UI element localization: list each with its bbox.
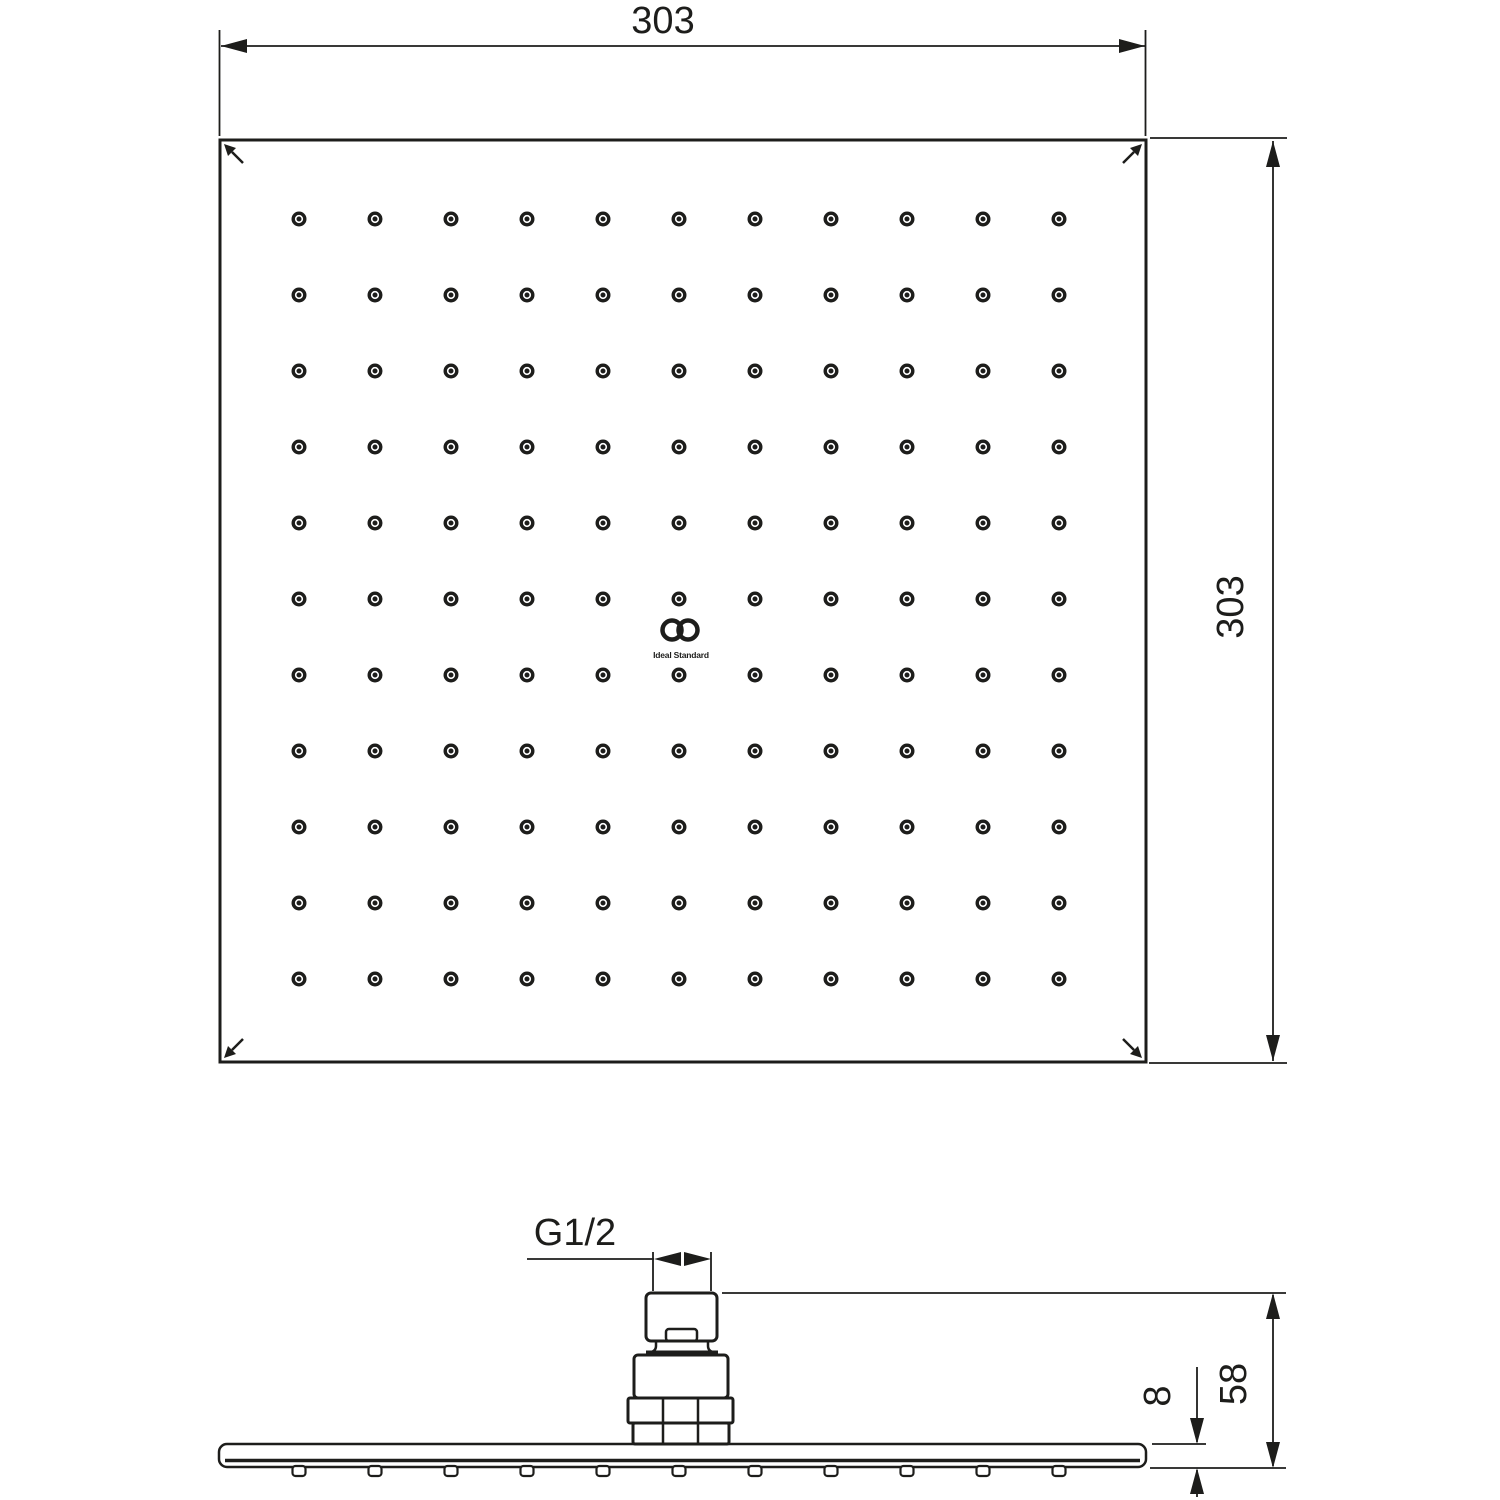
nozzle-dot bbox=[292, 592, 307, 607]
nozzle-dot bbox=[292, 744, 307, 759]
nozzle-dot bbox=[900, 288, 915, 303]
nozzle-dot bbox=[748, 364, 763, 379]
nozzle-dot bbox=[596, 212, 611, 227]
nozzle-dot bbox=[444, 288, 459, 303]
dimension-thread: G1/2 bbox=[527, 1212, 711, 1291]
nozzle-dot bbox=[520, 440, 535, 455]
nozzle-dot bbox=[1052, 516, 1067, 531]
arrowhead-down-icon bbox=[1266, 1035, 1280, 1061]
nozzle-dot bbox=[824, 516, 839, 531]
nozzle-dot bbox=[672, 288, 687, 303]
dimension-plate-thickness-label: 8 bbox=[1137, 1385, 1179, 1406]
nozzle-dot bbox=[596, 820, 611, 835]
thread-notch bbox=[666, 1329, 697, 1341]
arrowhead-down-icon bbox=[1266, 1442, 1280, 1468]
nozzle-dot bbox=[596, 440, 611, 455]
dimension-width: 303 bbox=[220, 0, 1146, 136]
corner-mark-line bbox=[1123, 152, 1134, 163]
nozzle-dot bbox=[976, 592, 991, 607]
nozzle-dot bbox=[748, 516, 763, 531]
nozzle-dot bbox=[976, 820, 991, 835]
nozzle-dot bbox=[976, 668, 991, 683]
arrowhead-up-icon bbox=[1266, 141, 1280, 167]
nozzle-dot bbox=[444, 744, 459, 759]
nozzle-dot bbox=[900, 440, 915, 455]
swivel-block bbox=[634, 1355, 728, 1398]
nozzle-dot bbox=[596, 364, 611, 379]
logo-wordmark: Ideal Standard bbox=[653, 650, 709, 660]
nozzle-dot bbox=[292, 668, 307, 683]
nozzle-dot bbox=[824, 896, 839, 911]
nozzle-dot bbox=[596, 896, 611, 911]
arrowhead-left-icon bbox=[654, 1252, 681, 1266]
nozzle-dot bbox=[368, 592, 383, 607]
nozzle-dot bbox=[444, 364, 459, 379]
nozzle-dot bbox=[596, 668, 611, 683]
nozzle-tick bbox=[673, 1466, 686, 1476]
nozzle-dot bbox=[520, 744, 535, 759]
dimension-width-label: 303 bbox=[631, 0, 694, 42]
nozzle-dot bbox=[596, 288, 611, 303]
nozzle-dot bbox=[1052, 896, 1067, 911]
nozzle-dot bbox=[596, 972, 611, 987]
nozzle-grid bbox=[292, 212, 1067, 987]
corner-mark-line bbox=[232, 1039, 243, 1050]
nozzle-dot bbox=[824, 592, 839, 607]
nozzle-dot bbox=[520, 820, 535, 835]
nozzle-tick bbox=[445, 1466, 458, 1476]
nozzle-dot bbox=[824, 972, 839, 987]
technical-drawing: Ideal Standard 303 303 bbox=[0, 0, 1500, 1500]
nozzle-dot bbox=[900, 972, 915, 987]
nozzle-dot bbox=[672, 516, 687, 531]
nozzle-dot bbox=[748, 972, 763, 987]
corner-mark-line bbox=[1123, 1039, 1134, 1050]
nozzle-dot bbox=[520, 212, 535, 227]
nozzle-dot bbox=[292, 516, 307, 531]
nozzle-dot bbox=[1052, 668, 1067, 683]
nozzle-dot bbox=[292, 440, 307, 455]
nozzle-dot bbox=[520, 592, 535, 607]
dimension-total-height: 58 bbox=[722, 1293, 1286, 1468]
nozzle-dot bbox=[976, 288, 991, 303]
nozzle-dot bbox=[520, 364, 535, 379]
plate-profile bbox=[219, 1444, 1146, 1467]
nozzle-dot bbox=[368, 972, 383, 987]
nut-lower-band bbox=[633, 1423, 729, 1444]
nozzle-dot bbox=[748, 440, 763, 455]
nozzle-dot bbox=[900, 896, 915, 911]
nozzle-dot bbox=[368, 896, 383, 911]
nozzle-dot bbox=[748, 744, 763, 759]
nozzle-dot bbox=[368, 744, 383, 759]
nozzle-dot bbox=[596, 516, 611, 531]
nozzle-dot bbox=[672, 212, 687, 227]
nozzle-dot bbox=[748, 212, 763, 227]
top-view: Ideal Standard bbox=[220, 140, 1146, 1062]
nozzle-dot bbox=[824, 212, 839, 227]
nozzle-dot bbox=[444, 212, 459, 227]
nozzle-dot bbox=[444, 516, 459, 531]
nozzle-tick bbox=[977, 1466, 990, 1476]
nozzle-dot bbox=[900, 592, 915, 607]
nozzle-dot bbox=[672, 972, 687, 987]
nozzle-dot bbox=[292, 972, 307, 987]
nozzle-dot bbox=[520, 668, 535, 683]
nozzle-dot bbox=[748, 820, 763, 835]
nozzle-dot bbox=[596, 744, 611, 759]
thread-block bbox=[646, 1293, 717, 1341]
nozzle-dot bbox=[1052, 820, 1067, 835]
arrowhead-down-icon bbox=[1190, 1418, 1204, 1444]
nozzle-dot bbox=[976, 440, 991, 455]
nut-upper-band bbox=[628, 1398, 733, 1423]
nozzle-dot bbox=[444, 592, 459, 607]
dimension-height-label: 303 bbox=[1210, 575, 1252, 638]
nozzle-dot bbox=[520, 288, 535, 303]
nozzle-dot bbox=[1052, 440, 1067, 455]
nozzle-dot bbox=[596, 592, 611, 607]
nozzle-dot bbox=[520, 516, 535, 531]
nozzle-dot bbox=[444, 972, 459, 987]
side-view bbox=[219, 1293, 1146, 1476]
nozzle-dot bbox=[520, 896, 535, 911]
dimension-height: 303 bbox=[1149, 138, 1287, 1063]
nozzle-dot bbox=[292, 288, 307, 303]
nozzle-dot bbox=[292, 820, 307, 835]
nozzle-dot bbox=[824, 668, 839, 683]
nozzle-dot bbox=[444, 820, 459, 835]
nozzle-dot bbox=[976, 364, 991, 379]
drawing-canvas: Ideal Standard 303 303 bbox=[0, 0, 1500, 1500]
nozzle-dot bbox=[824, 744, 839, 759]
nozzle-dot bbox=[900, 516, 915, 531]
nozzle-dot bbox=[1052, 744, 1067, 759]
nozzle-dot bbox=[368, 440, 383, 455]
corner-mark-bottom-right bbox=[1123, 1039, 1142, 1058]
nozzle-dot bbox=[976, 972, 991, 987]
nozzle-dot bbox=[748, 896, 763, 911]
nozzle-dot bbox=[444, 440, 459, 455]
corner-mark-bottom-left bbox=[224, 1039, 243, 1058]
dimension-total-height-label: 58 bbox=[1213, 1363, 1255, 1405]
nozzle-dot bbox=[824, 288, 839, 303]
nozzle-dot bbox=[1052, 288, 1067, 303]
nozzle-tick bbox=[1053, 1466, 1066, 1476]
nozzle-dot bbox=[976, 212, 991, 227]
nozzle-dot bbox=[444, 896, 459, 911]
nozzle-dot bbox=[444, 668, 459, 683]
nozzle-dot bbox=[1052, 212, 1067, 227]
nozzle-dot bbox=[976, 896, 991, 911]
nozzle-tick bbox=[749, 1466, 762, 1476]
nozzle-dot bbox=[672, 744, 687, 759]
nozzle-dot bbox=[368, 820, 383, 835]
nozzle-dot bbox=[824, 820, 839, 835]
nozzle-tick bbox=[901, 1466, 914, 1476]
nozzle-dot bbox=[672, 820, 687, 835]
nozzle-dot bbox=[976, 744, 991, 759]
nozzle-tick bbox=[597, 1466, 610, 1476]
nozzle-dot bbox=[748, 668, 763, 683]
connector-stack bbox=[628, 1293, 733, 1444]
nozzle-dot bbox=[1052, 592, 1067, 607]
arrowhead-up-icon bbox=[1190, 1468, 1204, 1494]
nozzle-dot bbox=[976, 516, 991, 531]
nozzle-dot bbox=[824, 440, 839, 455]
nozzle-dot bbox=[672, 440, 687, 455]
dimension-plate-thickness: 8 bbox=[1137, 1367, 1206, 1497]
nozzle-tick bbox=[293, 1466, 306, 1476]
corner-mark-line bbox=[232, 152, 243, 163]
nozzle-dot bbox=[368, 516, 383, 531]
nozzle-dot bbox=[520, 972, 535, 987]
nozzle-dot bbox=[900, 668, 915, 683]
nozzle-dot bbox=[292, 212, 307, 227]
nozzle-dot bbox=[900, 364, 915, 379]
nozzle-dot bbox=[368, 288, 383, 303]
nozzle-dot bbox=[900, 744, 915, 759]
nozzle-tick bbox=[521, 1466, 534, 1476]
nozzle-dot bbox=[672, 668, 687, 683]
nozzle-dot bbox=[672, 592, 687, 607]
nozzle-tick bbox=[825, 1466, 838, 1476]
nozzle-tick bbox=[369, 1466, 382, 1476]
nozzle-dot bbox=[900, 212, 915, 227]
arrowhead-right-icon bbox=[1119, 39, 1145, 53]
nozzle-dot bbox=[368, 364, 383, 379]
nozzle-dot bbox=[748, 288, 763, 303]
nozzle-dot bbox=[292, 364, 307, 379]
nozzle-dot bbox=[824, 364, 839, 379]
nozzle-dot bbox=[672, 364, 687, 379]
arrowhead-up-icon bbox=[1266, 1293, 1280, 1319]
nozzle-dot bbox=[1052, 364, 1067, 379]
arrowhead-left-icon bbox=[221, 39, 247, 53]
nozzle-dot bbox=[292, 896, 307, 911]
brand-logo: Ideal Standard bbox=[653, 621, 709, 661]
nozzle-dot bbox=[1052, 972, 1067, 987]
nozzle-dot bbox=[672, 896, 687, 911]
nozzle-dot bbox=[900, 820, 915, 835]
arrowhead-right-icon bbox=[684, 1252, 711, 1266]
nozzle-dot bbox=[748, 592, 763, 607]
corner-mark-top-right bbox=[1123, 144, 1142, 163]
dimension-thread-label: G1/2 bbox=[534, 1212, 616, 1254]
corner-mark-top-left bbox=[224, 144, 243, 163]
nozzle-dot bbox=[368, 668, 383, 683]
nozzle-dot bbox=[368, 212, 383, 227]
